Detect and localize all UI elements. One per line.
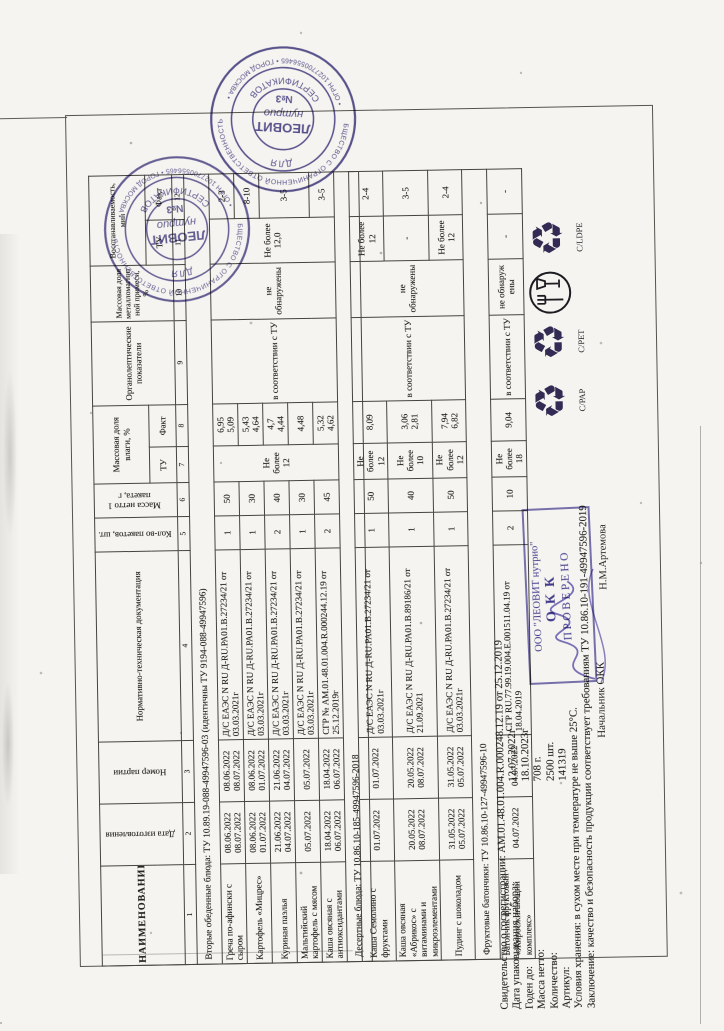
table-cell: 18.04.202206.07.2022 bbox=[319, 738, 345, 800]
table-cell: Не более 12 bbox=[353, 443, 388, 480]
table-cell: 30 bbox=[239, 481, 265, 515]
recycling-mark-pap: ♻ С/РАР bbox=[528, 374, 588, 427]
svg-text:нутрио: нутрио bbox=[156, 215, 196, 231]
table-cell: 8,09 bbox=[353, 401, 388, 444]
table-cell: 2 bbox=[315, 514, 341, 548]
column-number: 5 bbox=[178, 516, 191, 550]
col-header-net-mass: Масса нетто 1 пакета, г bbox=[94, 483, 178, 518]
glass-fork-icon bbox=[526, 268, 575, 317]
recycle-icon: ♻ bbox=[527, 315, 574, 368]
recycle-icon: ♻ bbox=[528, 374, 575, 427]
table-cell: 1 bbox=[240, 515, 266, 549]
table-cell: не обнаруж ены bbox=[488, 259, 524, 316]
recycling-mark-pet: ♻ С/РЕТ bbox=[527, 315, 587, 368]
table-cell: 45 bbox=[314, 480, 340, 514]
dish-name-cell: Каша овсяная с антиоксидантами bbox=[321, 862, 348, 962]
table-cell: 9,04 bbox=[491, 399, 526, 442]
svg-text:ДЛЯ: ДЛЯ bbox=[268, 157, 293, 170]
table-cell: 05.07.2022 bbox=[294, 738, 320, 800]
table-cell: Не более 10 bbox=[387, 442, 433, 479]
table-cell: Не более 12 bbox=[349, 216, 384, 262]
signature bbox=[535, 556, 623, 687]
scanned-certificate-page: { "t1": { "h": { "c1": "НАИМЕНОВАНИЕ", "… bbox=[0, 0, 724, 1024]
table-cell: 31.05.202205.07.2022 bbox=[439, 798, 474, 861]
recycle-label: C/LDPE bbox=[574, 211, 585, 263]
table-cell: Д/С ЕАЭС N RU Д-RU.РА01.В.27234/21 от 03… bbox=[355, 547, 392, 738]
dish-name-cell: Картофель «Мицрес» bbox=[246, 863, 273, 963]
table-cell: СГР № АМ.01.48.01.004.R.000244.12.19 от … bbox=[315, 548, 343, 738]
skewed-content: НАИМЕНОВАНИЕ Дата изготовления Номер пар… bbox=[0, 0, 724, 1030]
info-value: 141319 bbox=[556, 748, 569, 783]
table-cell: Не более 12 bbox=[213, 444, 339, 482]
table-cell: в соответствии с ТУ bbox=[489, 315, 525, 400]
dish-name-cell: Греча по-афински с сыром bbox=[221, 864, 248, 964]
recycling-mark-ldpe: ♻ C/LDPE bbox=[525, 211, 585, 264]
table-cell: Д/С ЕАЭС N RU Д-RU.РА01.В.27234/21 от 03… bbox=[265, 549, 293, 739]
table-cell: 2 bbox=[265, 515, 291, 549]
table-cell: 50 bbox=[433, 478, 468, 513]
table-cell: - bbox=[487, 169, 523, 215]
dish-name-cell: Мальтийский картофель с мясом bbox=[296, 862, 323, 962]
table-cell: 31.05.202205.07.2022 bbox=[438, 736, 473, 799]
food-contact-mark bbox=[526, 266, 580, 319]
column-number: 3 bbox=[182, 740, 195, 802]
subheader-tu: ТУ bbox=[149, 447, 177, 483]
col-header-ntd: Нормативно-техническая документация bbox=[95, 551, 181, 742]
table-cell: 4,74,44 bbox=[263, 403, 289, 445]
table-cell: Не более 12 bbox=[433, 442, 468, 479]
table-cell: 01.07.2022 bbox=[360, 799, 395, 862]
dish-name-cell: Каша овсяная «Абрикос» с витаминами и ми… bbox=[395, 860, 442, 961]
round-stamp-leovit-2: ОБЩЕСТВО С ОГРАНИЧЕННОЙ ОТВЕТСТВЕННОСТЬЮ… bbox=[94, 146, 261, 313]
col-header-organoleptic: Органолептические показатели bbox=[91, 321, 176, 406]
table-cell: 01.07.2022 bbox=[358, 737, 393, 800]
svg-text:ДЛЯ: ДЛЯ bbox=[169, 266, 194, 280]
column-number: 6 bbox=[177, 482, 190, 516]
table-cell: 21.06.202204.07.2022 bbox=[270, 801, 296, 863]
info-value: 708 г. bbox=[532, 756, 544, 784]
info-value: 18.10.2023г bbox=[519, 728, 532, 784]
col-header-moisture: Массовая доля влаги, % bbox=[93, 405, 150, 484]
table-cell: Д/С ЕАЭС N RU Д-RU.РА01.В.27234/21 от 03… bbox=[215, 550, 243, 740]
col-header-mfg-date: Дата изготовления bbox=[100, 803, 184, 866]
table-cell: в соответствии с ТУ bbox=[351, 316, 466, 402]
info-value: 2500 шт. bbox=[544, 742, 557, 784]
table-cell: - bbox=[488, 214, 524, 260]
table-cell: 3-5 bbox=[383, 170, 429, 216]
table-cell: 08.06.202208.07.2022 bbox=[219, 740, 245, 802]
table-cell: 1 bbox=[215, 516, 241, 550]
svg-text:№3: №3 bbox=[275, 93, 293, 105]
col-header-packets: Кол-во пакетов, шт. bbox=[95, 517, 179, 552]
table-cell: 08.06.202208.07.2022 bbox=[220, 802, 246, 864]
table-cell: 05.07.2022 bbox=[295, 800, 321, 862]
table-cell: 4,48 bbox=[288, 402, 314, 444]
col-header-batch: Номер партии bbox=[98, 741, 182, 804]
svg-text:ЛЕОВИТ: ЛЕОВИТ bbox=[255, 119, 311, 137]
table-cell: в соответствии с ТУ bbox=[211, 318, 337, 404]
col-header-name: НАИМЕНОВАНИЕ bbox=[101, 865, 186, 966]
table-cell: 50 bbox=[354, 479, 389, 514]
table-cell: Не более 12 bbox=[429, 215, 464, 261]
table-cell: 30 bbox=[289, 480, 315, 514]
table-cell: 5,324,62 bbox=[313, 402, 339, 444]
table-cell: 08.06.202201.07.2022 bbox=[244, 739, 270, 801]
column-number: 7 bbox=[176, 446, 189, 482]
table-cell: 3,062,81 bbox=[387, 400, 433, 443]
info-label: Условия хранения: bbox=[572, 922, 586, 1008]
info-value: 12.07.2022г bbox=[506, 729, 519, 785]
table-cell: 40 bbox=[388, 478, 434, 513]
table-cell: 1 bbox=[355, 513, 390, 548]
table-cell: Д/С ЕАЭС N RU Д-RU.РА01.В.27234/21 от 03… bbox=[240, 549, 268, 739]
table-cell: - bbox=[383, 215, 429, 261]
table-cell: 08.06.202201.07.2022 bbox=[245, 801, 271, 863]
table-cell: 20.05.202208.07.2022 bbox=[394, 798, 440, 861]
table-cell: 40 bbox=[264, 481, 290, 515]
rotated-scan-sheet: НАИМЕНОВАНИЕ Дата изготовления Номер пар… bbox=[0, 0, 724, 1024]
table-cell: 1 bbox=[389, 512, 435, 547]
dish-name-cell: Пудинг с шоколадом bbox=[440, 860, 476, 961]
table-cell: Д/С ЕАЭС N RU Д-RU.РА01.В.89186/21 от 21… bbox=[389, 546, 438, 737]
svg-text:нутрио: нутрио bbox=[263, 106, 303, 120]
svg-text:№3: №3 bbox=[166, 202, 184, 215]
table-cell: 18.04.202206.07.2022 bbox=[320, 800, 346, 862]
table-cell: 6,955,09 bbox=[213, 404, 239, 446]
table-cell: 1 bbox=[434, 512, 469, 547]
column-number: 2 bbox=[183, 802, 196, 864]
subheader-fact: Факт bbox=[149, 405, 177, 447]
recycle-icon: ♻ bbox=[525, 211, 572, 264]
table-cell: Д/С ЕАЭС N RU Д-RU.РА01.В.27234/21 от 03… bbox=[290, 548, 318, 738]
table-cell: не обнаружены bbox=[350, 260, 464, 318]
table-cell: 21.06.202204.07.2022 bbox=[269, 739, 295, 801]
table-cell: 5,434,64 bbox=[238, 403, 264, 445]
dish-name-cell: Куриная паэлья bbox=[271, 863, 298, 963]
table-cell: 2-4 bbox=[428, 170, 463, 216]
table-cell: 20.05.202208.07.2022 bbox=[392, 736, 438, 799]
recycle-label: С/РАР bbox=[577, 374, 588, 426]
table-cell: 1 bbox=[290, 514, 316, 548]
scan-crease-line bbox=[0, 117, 67, 120]
info-label: Заключение: bbox=[585, 950, 598, 1008]
table-cell: 7,946,82 bbox=[432, 400, 467, 443]
dish-name-cell: Каша Семолино с фруктами bbox=[361, 861, 397, 962]
table-cell: Д/С ЕАЭС N RU Д-RU.РА01.В.27234/21 от 03… bbox=[434, 546, 471, 737]
table-cell: 50 bbox=[214, 482, 240, 516]
column-number: 8 bbox=[176, 404, 189, 446]
recycle-label: С/РЕТ bbox=[576, 315, 587, 367]
